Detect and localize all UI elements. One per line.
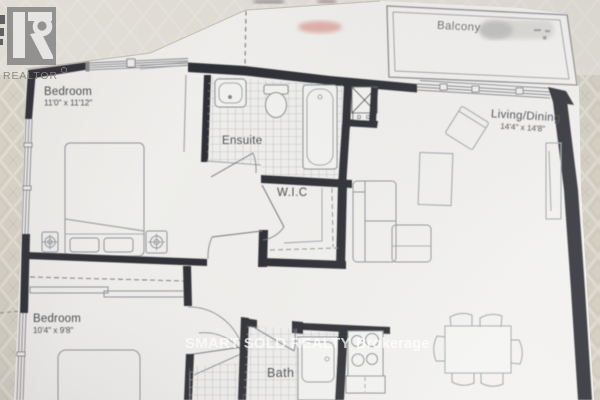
svg-text:Brokerage: Brokerage (356, 336, 430, 352)
svg-text:SMART SOLD REALTY: SMART SOLD REALTY (185, 335, 351, 352)
svg-text:REALTOR: REALTOR (3, 70, 58, 82)
